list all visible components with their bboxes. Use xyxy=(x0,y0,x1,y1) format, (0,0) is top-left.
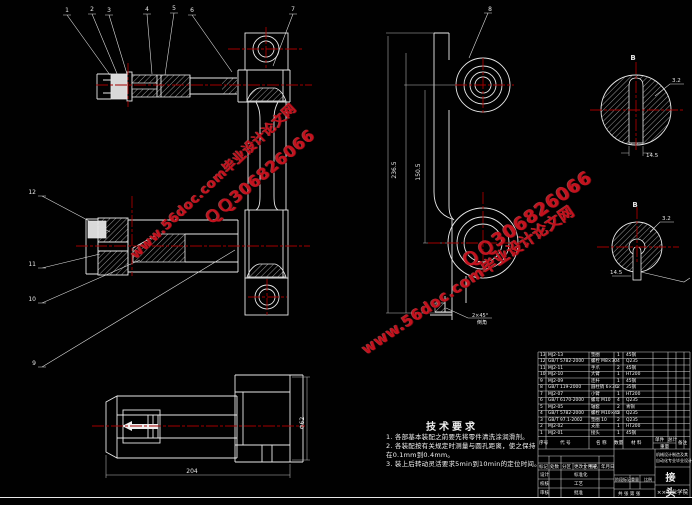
tb-design: 设计 xyxy=(540,473,549,478)
tb-standard: 标准化 xyxy=(574,473,588,478)
bom-cell: 垫圈 10 xyxy=(591,418,607,423)
tb-scale: 比例 xyxy=(644,477,652,482)
bom-cell: 大臂 xyxy=(591,372,600,377)
bom-cell: 4 xyxy=(540,411,543,416)
bom-cell: 4 xyxy=(617,398,620,403)
bom-cell: 35钢 xyxy=(626,385,636,390)
bom-cell: MJ2-10 xyxy=(548,372,563,377)
bom-row: 1MJ2-01接头145钢 xyxy=(538,430,690,437)
bom-cell: 圆柱销 6×30 xyxy=(591,385,618,390)
dim-shaft-diameter: Φ62 xyxy=(299,417,306,430)
bom-cell: 6 xyxy=(540,398,543,403)
tech-requirement-line: 在0.1mm到0.4mm。 xyxy=(386,451,454,460)
tech-requirement-line: 2. 各装配按有关规定时测量与圆孔距离，使之保持 xyxy=(386,442,536,451)
bom-cell: 1 xyxy=(540,431,543,436)
dim-bracket-outer: 236.5 xyxy=(391,161,398,178)
tb-craft: 工艺 xyxy=(574,482,583,487)
bom-cell: Q235 xyxy=(626,418,638,423)
bom-cell: MJ2-07 xyxy=(548,392,563,397)
tb-stage: 阶段标记 xyxy=(615,477,631,482)
callout: 2 xyxy=(90,6,94,13)
tb-check: 校核 xyxy=(540,482,549,487)
callout: 4 xyxy=(145,6,149,13)
dim-foot-note-2: 倒角 xyxy=(477,319,487,326)
callout: 8 xyxy=(488,6,492,13)
bom-cell: 2 xyxy=(617,418,620,423)
bom-cell: 连杆 xyxy=(591,379,600,384)
bom-cell: 2 xyxy=(617,385,620,390)
tech-requirement-line: 3. 装上后转动灵活要求5min到10min的定位时间。 xyxy=(386,460,541,469)
dim-slot-width: 14.5 xyxy=(610,270,623,276)
leader-lines-top xyxy=(63,13,297,76)
bom-cell: 3 xyxy=(540,418,543,423)
bom-cell: 手爪 xyxy=(591,366,600,371)
cad-drawing-canvas: 1 2 3 4 5 6 7 xyxy=(0,0,692,505)
bom-cell: 1 xyxy=(617,372,620,377)
bom-cell: 支座 xyxy=(591,424,600,429)
bom-cell: 10 xyxy=(540,372,546,377)
bom-cell: 2 xyxy=(540,424,543,429)
callout: 7 xyxy=(291,6,295,13)
bom-cell: 4 xyxy=(617,359,620,364)
leader-lines-left xyxy=(38,196,235,367)
detail-section-top: B 3.2 14.5 xyxy=(601,54,684,159)
bom-cell: 8 xyxy=(540,385,543,390)
bom-cell: 5 xyxy=(540,405,543,410)
bom-cell: 接头 xyxy=(591,431,600,436)
bom-cell: MJ2-09 xyxy=(548,379,563,384)
bom-cell: GB/T 6170-2000 xyxy=(548,398,584,403)
bom-cell: 1 xyxy=(617,353,620,358)
bom-cell: HT200 xyxy=(626,372,640,377)
tech-requirements-title: 技术要求 xyxy=(426,418,478,433)
tb-sign: 签名 xyxy=(589,465,598,470)
callout: 1 xyxy=(65,7,69,14)
bom-cell: 1 xyxy=(617,379,620,384)
bom-cell: 小臂 xyxy=(591,392,600,397)
bom-cell: MJ2-11 xyxy=(548,366,563,371)
bom-table: 13MJ2-13垫圈145钢12GB/T 5782-2000螺栓 M8×304Q… xyxy=(538,352,690,437)
dim-roughness: 3.2 xyxy=(662,216,671,222)
bom-cell: 45钢 xyxy=(626,431,636,436)
dim-bracket-inner: 150.5 xyxy=(415,163,422,180)
bom-cell: 螺母 M10 xyxy=(591,398,611,403)
callout: 3 xyxy=(107,7,111,14)
bom-cell: 2 xyxy=(617,405,620,410)
bom-cell: 1 xyxy=(617,392,620,397)
bom-cell: HT200 xyxy=(626,392,640,397)
bom-cell: 螺栓 M8×30 xyxy=(591,359,617,364)
tb-count: 处数 xyxy=(550,465,559,470)
callout: 12 xyxy=(28,189,36,196)
bom-cell: 45钢 xyxy=(626,379,636,384)
callout: 10 xyxy=(28,296,36,303)
tb-date: 年月日 xyxy=(601,465,615,470)
bom-cell: Q235 xyxy=(626,398,638,403)
callout: 11 xyxy=(28,261,36,268)
tb-mark: 标记 xyxy=(539,465,548,470)
tb-audit: 审核 xyxy=(540,491,549,496)
tb-project-line2: 自动化专业毕业设计 xyxy=(656,458,690,464)
section-label: B xyxy=(630,54,635,62)
detail-section-bottom: B 3.2 14.5 xyxy=(610,201,690,282)
bom-cell: 轴套 xyxy=(591,405,600,410)
bom-cell: GB/T 97.1-2002 xyxy=(548,418,583,423)
view-top-bolt-assembly: 1 2 3 4 5 6 7 xyxy=(63,5,297,101)
bom-cell: 45钢 xyxy=(626,366,636,371)
dim-slot-width: 14.5 xyxy=(646,153,659,159)
bom-cell: 13 xyxy=(540,353,546,358)
callout: 6 xyxy=(190,7,194,14)
bom-cell: 7 xyxy=(540,392,543,397)
tech-requirement-line: 1. 各部基本装配之前要先将零件清洗涂润滑剂。 xyxy=(386,433,529,442)
bom-cell: Q235 xyxy=(626,411,638,416)
bom-cell: GB/T 5782-2000 xyxy=(548,359,584,364)
tb-school: ××工业学院 xyxy=(655,488,690,496)
dim-roughness: 3.2 xyxy=(672,78,681,84)
view-bottom-shaft: 204 Φ62 xyxy=(106,375,310,478)
dim-shaft-length: 204 xyxy=(186,468,198,475)
bom-cell: 1 xyxy=(617,431,620,436)
bom-cell: GB/T 5782-2000 xyxy=(548,411,584,416)
bom-cell: MJ2-01 xyxy=(548,431,563,436)
tb-zone: 分区 xyxy=(562,465,571,470)
bom-cell: MJ2-13 xyxy=(548,353,563,358)
tb-weight: 重量 xyxy=(631,477,639,482)
bom-cell: 青铜 xyxy=(626,405,635,410)
bom-cell: MJ2-02 xyxy=(548,424,563,429)
bom-cell: 2 xyxy=(617,366,620,371)
bom-cell: Q235 xyxy=(626,359,638,364)
bom-cell: HT200 xyxy=(626,424,640,429)
bom-cell: 9 xyxy=(540,379,543,384)
callout: 5 xyxy=(172,5,176,12)
dim-foot-note-1: 2×45° xyxy=(472,313,489,319)
bom-cell: MJ2-05 xyxy=(548,405,563,410)
tb-approve: 批准 xyxy=(574,491,583,496)
bom-cell: 螺栓 M10×45 xyxy=(591,411,620,416)
bom-cell: 1 xyxy=(617,424,620,429)
bom-cell: 12 xyxy=(540,359,546,364)
bom-cell: 垫圈 xyxy=(591,353,600,358)
tb-sheet: 共 张 第 张 xyxy=(618,492,640,497)
bom-cell: 11 xyxy=(540,366,546,371)
bom-cell: GB/T 119-2000 xyxy=(548,385,581,390)
bom-cell: 45钢 xyxy=(626,353,636,358)
callout: 9 xyxy=(32,360,36,367)
bom-cell: 2 xyxy=(617,411,620,416)
